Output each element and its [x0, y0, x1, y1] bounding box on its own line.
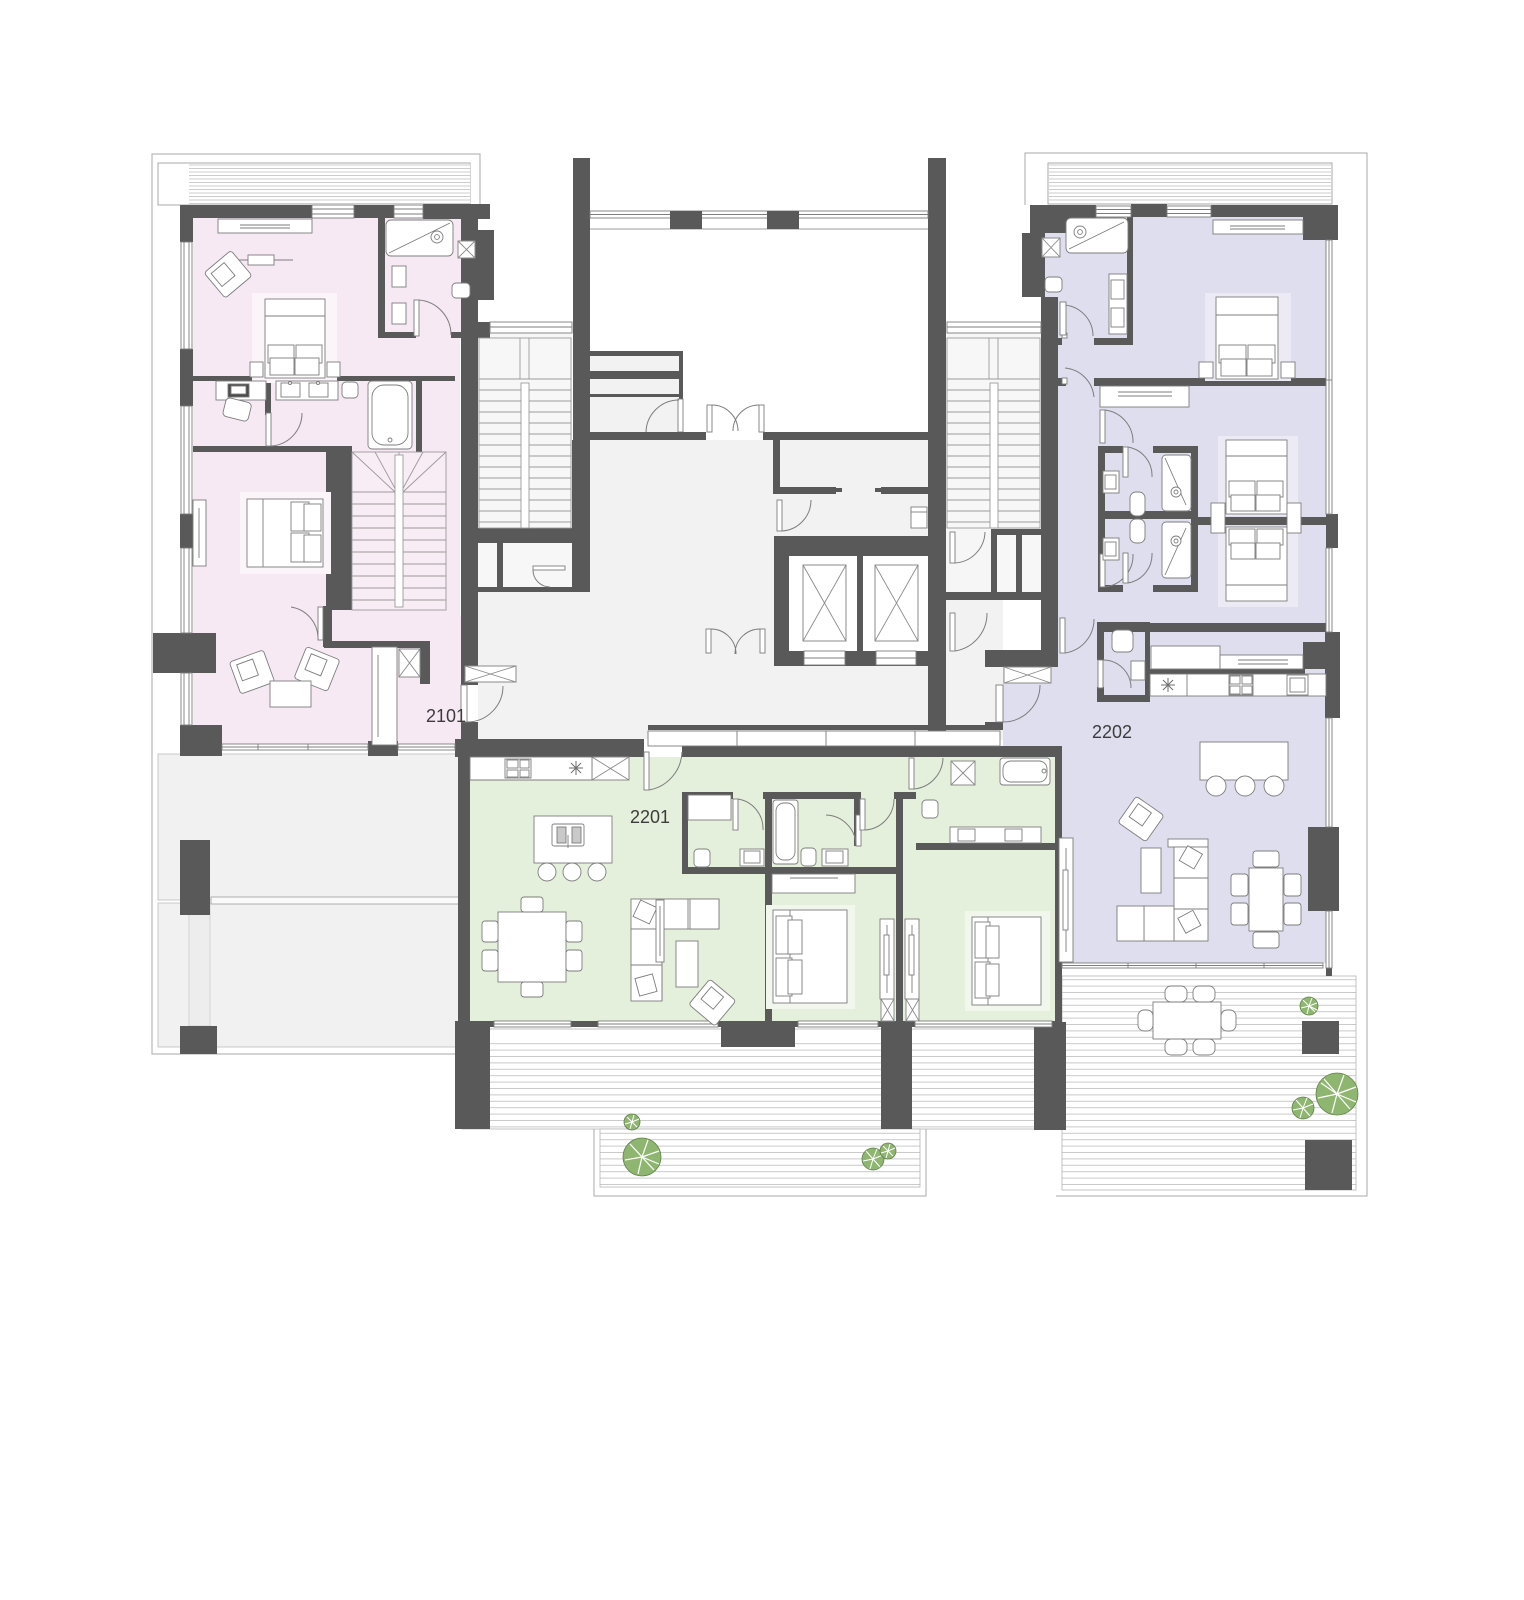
svg-text:2202: 2202 — [1092, 722, 1132, 742]
svg-text:2101: 2101 — [426, 706, 466, 726]
svg-text:2201: 2201 — [630, 807, 670, 827]
